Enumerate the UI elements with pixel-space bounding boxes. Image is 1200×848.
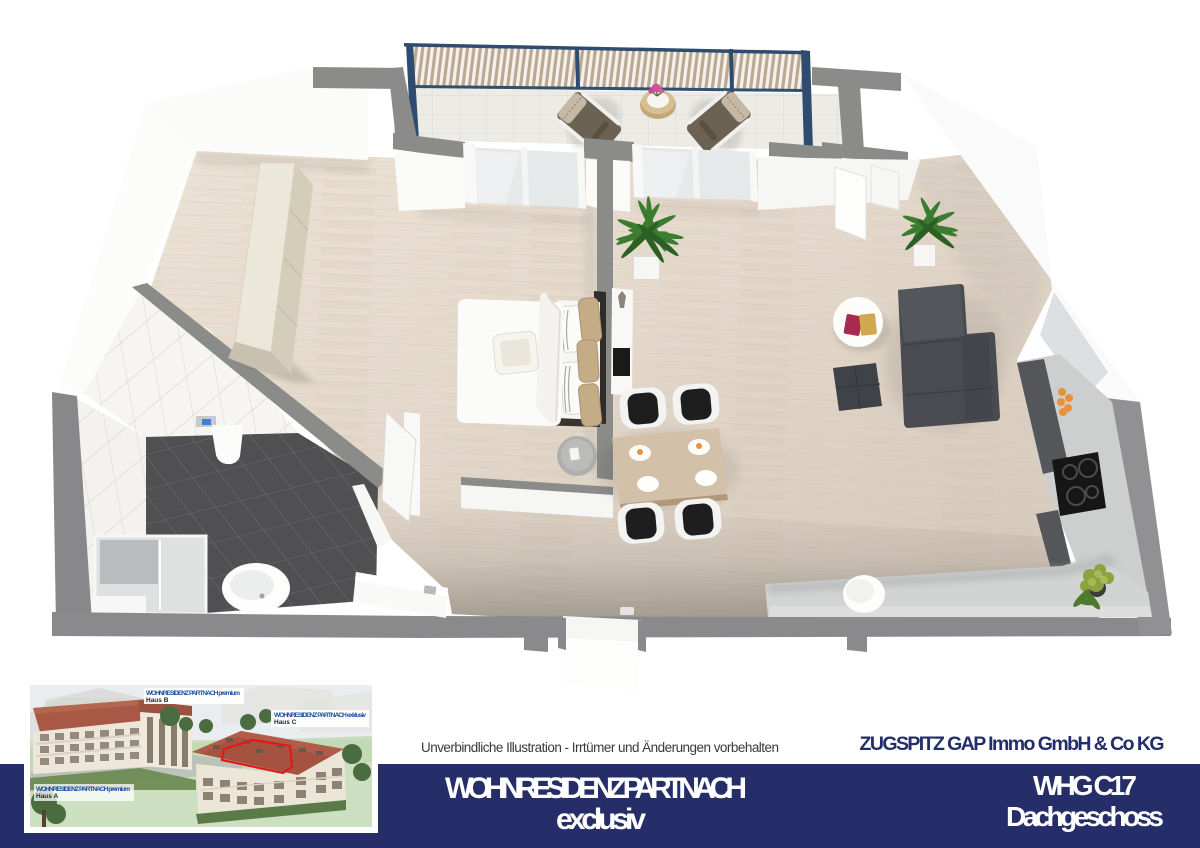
svg-text:WOHNRESIDENZ PARTNACH premium: WOHNRESIDENZ PARTNACH premium (36, 786, 130, 793)
svg-text:Haus C: Haus C (274, 719, 297, 726)
svg-text:exclusiv: exclusiv (556, 803, 646, 836)
svg-text:WOHNRESIDENZ PARTNACH premium: WOHNRESIDENZ PARTNACH premium (146, 690, 240, 697)
svg-text:WOHNRESIDENZ PARTNACH: WOHNRESIDENZ PARTNACH (445, 772, 747, 805)
svg-text:Dachgeschoss: Dachgeschoss (1006, 801, 1164, 832)
svg-text:WHG C17: WHG C17 (1033, 770, 1137, 801)
svg-text:Haus A: Haus A (36, 793, 58, 800)
svg-text:ZUGSPITZ GAP Immo GmbH & Co KG: ZUGSPITZ GAP Immo GmbH & Co KG (860, 733, 1165, 755)
svg-text:WOHNRESIDENZ PARTNACH exklusiv: WOHNRESIDENZ PARTNACH exklusiv (274, 712, 366, 719)
svg-text:Unverbindliche Illustration -: Unverbindliche Illustration - Irrtümer u… (421, 740, 779, 755)
svg-text:Haus B: Haus B (146, 697, 169, 704)
